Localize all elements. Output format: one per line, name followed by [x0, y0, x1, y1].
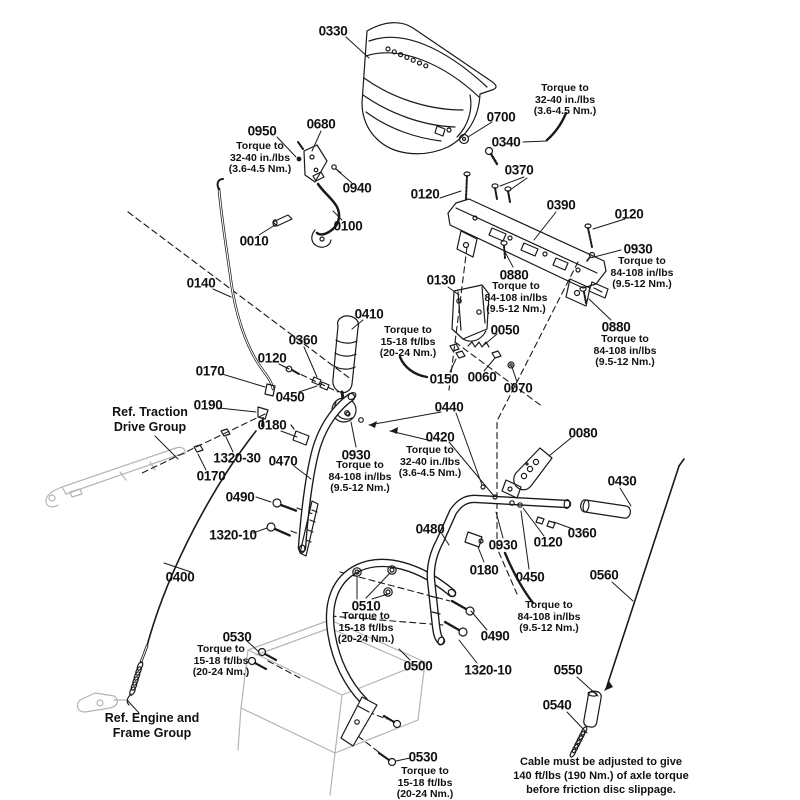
bolt-1320-10-right — [459, 628, 467, 636]
washer-0360-right — [536, 517, 544, 524]
rod-0100 — [317, 184, 339, 234]
crank-lever-0680 — [273, 142, 341, 247]
screw-0940 — [332, 165, 336, 169]
leader-lines — [128, 37, 633, 761]
control-rod-0140 — [194, 179, 275, 452]
bolt-1320-10-left — [267, 523, 275, 531]
ref-traction-drive-sketch — [46, 447, 185, 506]
push-nut-0700 — [460, 135, 469, 144]
speed-lever-0410 — [286, 316, 358, 422]
screw-0930-handle-b — [359, 418, 364, 423]
traction-cable-0400 — [127, 431, 256, 705]
nut-0150-b — [456, 351, 465, 358]
washer-0070 — [508, 362, 514, 368]
upper-handle-tube-0470 — [291, 391, 363, 556]
bolt-0880-left — [501, 241, 507, 245]
shift-lever-0080 — [502, 448, 552, 498]
spring-0050 — [468, 342, 489, 347]
nut-0060 — [492, 351, 501, 358]
cable-clamp-0180-left — [293, 431, 309, 445]
diagram-stage: 0330070003400370012003900120093008800880… — [0, 0, 800, 800]
ref-cable-anchor-sketch — [78, 693, 128, 712]
cable-arrowhead — [604, 681, 613, 691]
nut-0170-lower — [194, 445, 203, 452]
console-cover — [362, 23, 496, 154]
exploded-view-drawing — [0, 0, 800, 800]
lower-frame-tube-0500 — [330, 563, 457, 746]
vent-slots — [386, 47, 428, 68]
loop-handle-0480 — [430, 485, 570, 646]
mounting-plate — [448, 199, 608, 306]
point-0950 — [297, 157, 301, 161]
handle-grip-0430 — [581, 500, 631, 518]
washer-0360-left — [312, 377, 321, 385]
bolt-0490-left — [273, 499, 281, 507]
